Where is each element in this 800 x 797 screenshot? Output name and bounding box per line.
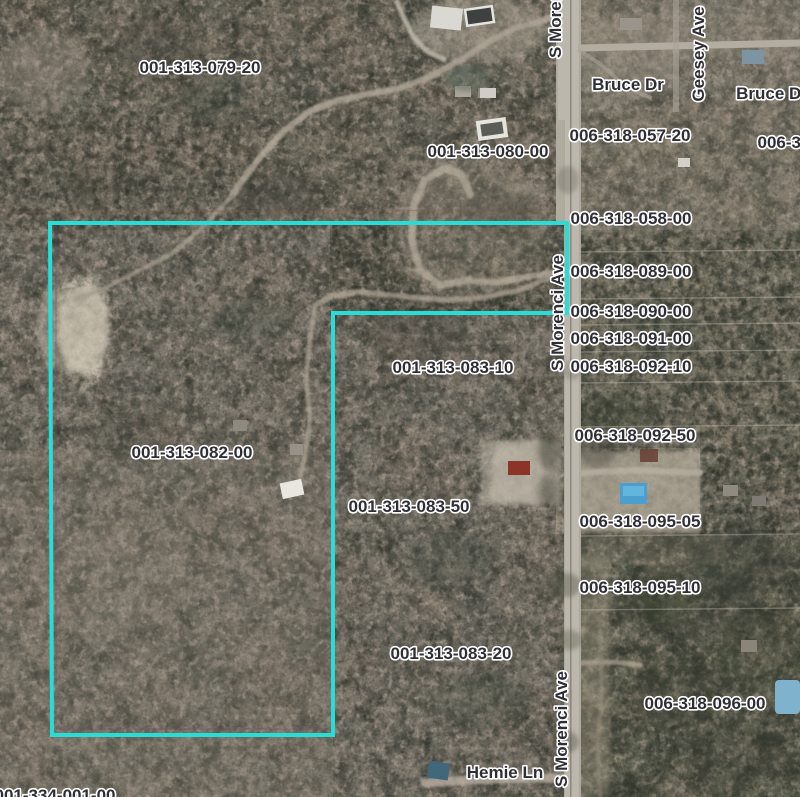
svg-text:006-318-057-20: 006-318-057-20 <box>570 126 691 145</box>
svg-text:S Morenci Ave: S Morenci Ave <box>546 0 565 58</box>
svg-text:S Morenci Ave: S Morenci Ave <box>548 255 567 371</box>
svg-text:006-318-095-10: 006-318-095-10 <box>580 578 701 597</box>
svg-text:Hemie Ln: Hemie Ln <box>467 763 544 782</box>
svg-text:001-334-001-00: 001-334-001-00 <box>0 786 115 797</box>
svg-text:Bruce Dr: Bruce Dr <box>592 75 664 94</box>
svg-text:S Morenci Ave: S Morenci Ave <box>552 671 571 787</box>
svg-text:001-313-083-10: 001-313-083-10 <box>393 358 514 377</box>
svg-text:Bruce Dr: Bruce Dr <box>736 84 800 103</box>
svg-text:006-318-089-00: 006-318-089-00 <box>571 262 692 281</box>
svg-text:001-313-079-20: 001-313-079-20 <box>140 58 261 77</box>
svg-text:006-318-096-00: 006-318-096-00 <box>645 694 766 713</box>
svg-text:Geesey Ave: Geesey Ave <box>689 6 708 101</box>
svg-text:001-313-083-20: 001-313-083-20 <box>391 644 512 663</box>
svg-text:006-318-090-00: 006-318-090-00 <box>571 302 692 321</box>
svg-text:001-313-083-50: 001-313-083-50 <box>349 497 470 516</box>
svg-text:001-313-082-00: 001-313-082-00 <box>132 443 253 462</box>
svg-text:006-318-092-10: 006-318-092-10 <box>571 357 692 376</box>
svg-text:006-318-092-50: 006-318-092-50 <box>575 426 696 445</box>
svg-text:006-318-095-05: 006-318-095-05 <box>580 512 701 531</box>
svg-text:006-318-058-00: 006-318-058-00 <box>571 209 692 228</box>
svg-text:006-318-057-10: 006-318-057-10 <box>758 133 800 152</box>
svg-text:001-313-080-00: 001-313-080-00 <box>428 142 549 161</box>
svg-text:006-318-091-00: 006-318-091-00 <box>571 329 692 348</box>
